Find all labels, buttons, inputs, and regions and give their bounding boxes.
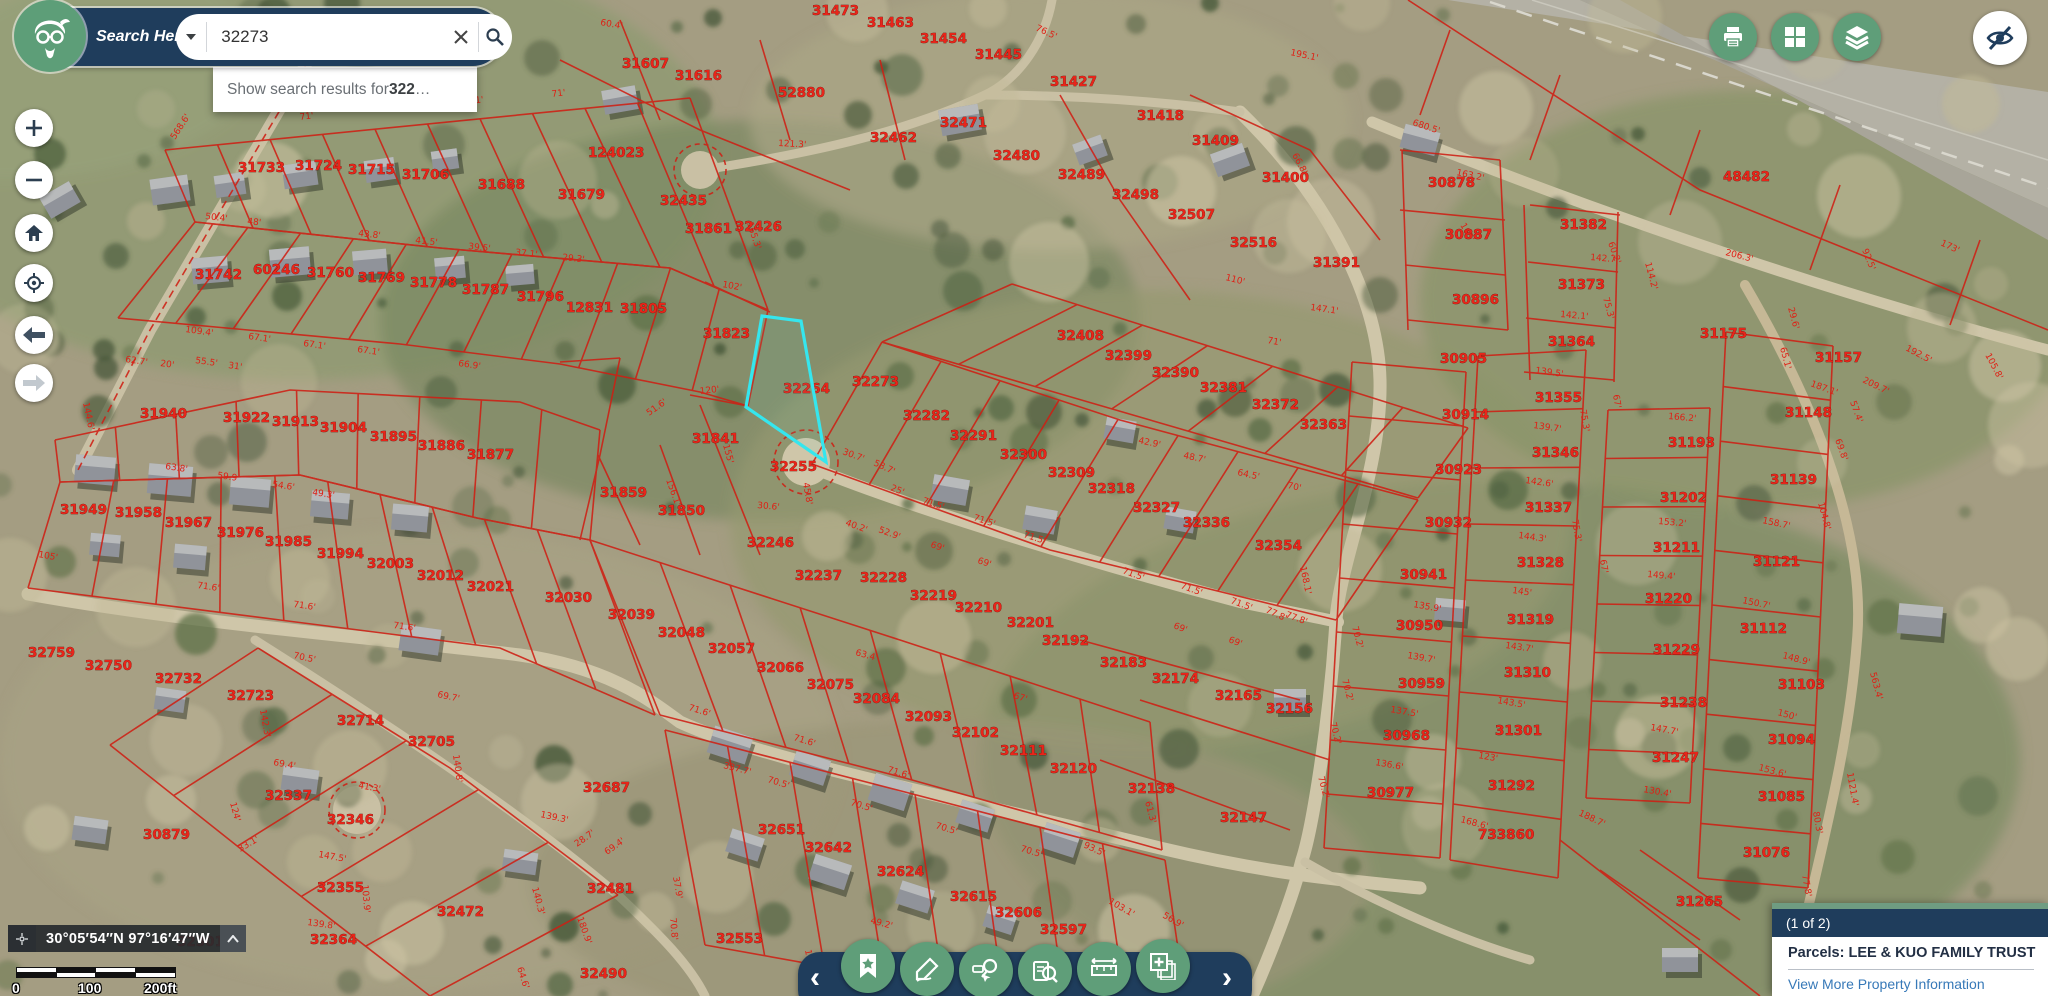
dimension-label: 20' (160, 359, 175, 371)
parcel-label: 32606 (995, 905, 1042, 921)
select-magnifier-icon (972, 958, 1000, 984)
parcel-label: 31310 (1504, 665, 1551, 681)
parcel-label: 32093 (905, 709, 952, 725)
parcel-label: 32490 (580, 966, 627, 982)
minus-icon (24, 170, 44, 190)
parcel-label: 733860 (1478, 827, 1534, 843)
property-search-button[interactable] (1018, 944, 1072, 996)
parcel-label: 32237 (795, 568, 842, 584)
parcel-label: 32111 (1000, 743, 1047, 759)
hide-interface-button[interactable] (1973, 11, 2027, 65)
bookmarks-button[interactable] (841, 939, 895, 993)
parcel-label: 31796 (517, 289, 564, 305)
parcel-label: 31760 (307, 265, 354, 281)
parcel-label: 31733 (238, 160, 285, 176)
parcel-label: 32021 (467, 579, 514, 595)
plus-icon (24, 118, 44, 138)
bookmark-icon (856, 953, 880, 979)
parcel-label: 32147 (1220, 810, 1267, 826)
result-title: Parcels: LEE & KUO FAMILY TRUST (1788, 945, 2034, 961)
parcel-label: 32399 (1105, 348, 1152, 364)
toolbar-prev-button[interactable]: ‹ (810, 965, 820, 991)
close-icon (453, 29, 469, 45)
parcel-label: 31724 (295, 158, 342, 174)
map-canvas[interactable]: 568.6'109.4'67.1'67.1'67.1'66.9'71'71'71… (0, 0, 2048, 996)
chevron-down-icon (185, 33, 197, 41)
parcel-label: 31148 (1785, 405, 1832, 421)
home-icon (24, 223, 44, 243)
layers-icon (1844, 24, 1870, 50)
parcel-label: 31094 (1768, 732, 1815, 748)
parcel-label: 30887 (1445, 227, 1492, 243)
parcel-label: 124023 (588, 145, 644, 161)
parcel-label: 32346 (327, 812, 374, 828)
parcel-label: 31454 (920, 31, 967, 47)
parcel-label: 32553 (716, 931, 763, 947)
parcel-label: 31940 (140, 406, 187, 422)
parcel-label: 32426 (735, 219, 782, 235)
parcel-label: 31103 (1778, 677, 1825, 693)
parcel-label: 31211 (1653, 540, 1700, 556)
results-body: Parcels: LEE & KUO FAMILY TRUST View Mor… (1772, 937, 2048, 996)
parcel-label: 31715 (348, 162, 395, 178)
dimension-label: 48' (247, 217, 262, 228)
parcel-label: 31175 (1700, 326, 1747, 342)
parcel-label: 30905 (1440, 351, 1487, 367)
parcel-label: 30879 (143, 827, 190, 843)
parcel-label: 32615 (950, 889, 997, 905)
parcel-label: 32273 (852, 374, 899, 390)
target-icon (23, 272, 45, 294)
parcel-label: 31427 (1050, 74, 1097, 90)
layers-button[interactable] (1833, 13, 1881, 61)
parcel-label: 31364 (1548, 334, 1595, 350)
parcel-label: 31373 (1558, 277, 1605, 293)
parcel-label: 32156 (1266, 701, 1313, 717)
zoom-in-button[interactable] (15, 109, 53, 147)
coordinate-readout: 30°05′54″N 97°16′47″W (8, 925, 246, 952)
parcel-label: 32246 (747, 535, 794, 551)
parcel-label: 32327 (1133, 500, 1180, 516)
chevron-up-icon (227, 935, 239, 943)
clear-search-button[interactable] (444, 14, 478, 60)
parcel-label: 32471 (940, 115, 987, 131)
parcel-label: 31391 (1313, 255, 1360, 271)
dimension-label: 70.8' (667, 917, 679, 940)
parcel-label: 32759 (28, 645, 75, 661)
parcel-label: 32507 (1168, 207, 1215, 223)
parcel-label: 31418 (1137, 108, 1184, 124)
parcel-label: 32165 (1215, 688, 1262, 704)
parcel-label: 31976 (217, 525, 264, 541)
coordinate-expand-button[interactable] (220, 925, 246, 952)
view-more-link[interactable]: View More Property Information (1788, 976, 2034, 992)
parcel-label: 32318 (1088, 481, 1135, 497)
parcel-label: 31085 (1758, 789, 1805, 805)
parcel-label: 32714 (337, 713, 384, 729)
parcel-label: 52880 (778, 85, 825, 101)
search-input[interactable] (207, 26, 444, 48)
parcel-label: 31247 (1652, 750, 1699, 766)
parcel-label: 31805 (620, 301, 667, 317)
scale-bar: 0 100 200ft (16, 967, 206, 996)
select-by-shape-button[interactable] (959, 944, 1013, 996)
divider (1788, 969, 2034, 970)
print-icon (1721, 25, 1745, 49)
parcel-label: 31895 (370, 429, 417, 445)
parcel-label: 31742 (195, 267, 242, 283)
parcel-label: 32336 (1183, 515, 1230, 531)
parcel-label: 31922 (223, 410, 270, 426)
parcel-label: 31949 (60, 502, 107, 518)
parcel-label: 31346 (1532, 445, 1579, 461)
dimension-label: 31' (228, 361, 243, 373)
parcel-label: 32300 (1000, 447, 1047, 463)
parcel-label: 32390 (1152, 365, 1199, 381)
parcel-label: 31994 (317, 546, 364, 562)
parcel-label: 32219 (910, 588, 957, 604)
parcel-label: 31904 (320, 420, 367, 436)
parcel-label: 31301 (1495, 723, 1542, 739)
parcel-label: 30968 (1383, 728, 1430, 744)
parcel-label: 32183 (1100, 655, 1147, 671)
app-logo[interactable] (14, 0, 86, 72)
parcel-label: 31445 (975, 47, 1022, 63)
parcel-label: 32354 (1255, 538, 1302, 554)
parcel-label: 31841 (692, 431, 739, 447)
parcel-label: 32516 (1230, 235, 1277, 251)
parcel-label: 32481 (587, 881, 634, 897)
basemap-grid-button[interactable] (1771, 13, 1819, 61)
parcel-label: 32750 (85, 658, 132, 674)
parcel-label: 32597 (1040, 922, 1087, 938)
my-location-button[interactable] (15, 264, 53, 302)
parcel-label: 32075 (807, 677, 854, 693)
parcel-label: 31787 (462, 282, 509, 298)
dimension-label: 30.6' (757, 501, 780, 513)
suggestion-ellipsis: … (415, 81, 431, 99)
parcel-label: 32201 (1007, 615, 1054, 631)
parcel-label: 32462 (870, 130, 917, 146)
eye-slash-icon (1985, 23, 2015, 53)
suggestion-prefix: Show search results for (227, 81, 389, 99)
parcel-label: 31861 (685, 221, 732, 237)
search-suggestion[interactable]: Show search results for 322… (213, 67, 477, 112)
parcel-label: 31121 (1753, 554, 1800, 570)
parcel-label: 32174 (1152, 671, 1199, 687)
parcel-label: 31229 (1653, 642, 1700, 658)
parcel-label: 32364 (310, 932, 357, 948)
grid-icon (1783, 25, 1807, 49)
parcel-label: 30923 (1435, 462, 1482, 478)
parcel-label: 32381 (1200, 380, 1247, 396)
parcel-label: 32210 (955, 600, 1002, 616)
parcel-label: 31886 (418, 438, 465, 454)
parcel-label: 30932 (1425, 515, 1472, 531)
parcel-label: 32039 (608, 607, 655, 623)
parcel-label: 31400 (1262, 170, 1309, 186)
parcel-label: 31220 (1645, 591, 1692, 607)
parcel-label: 31688 (478, 177, 525, 193)
parcel-label: 31193 (1668, 435, 1715, 451)
parcel-label: 31967 (165, 515, 212, 531)
scale-label-200: 200ft (144, 980, 177, 996)
map-application: 568.6'109.4'67.1'67.1'67.1'66.9'71'71'71… (0, 0, 2048, 996)
forward-button[interactable] (15, 364, 53, 402)
parcel-label: 32057 (708, 641, 755, 657)
parcel-label: 31706 (402, 167, 449, 183)
parcel-label: 32498 (1112, 187, 1159, 203)
dimension-label: 120' (699, 385, 720, 397)
parcel-label: 31265 (1676, 894, 1723, 910)
parcel-label: 32642 (805, 840, 852, 856)
parcel-label: 32003 (367, 556, 414, 572)
arrow-left-icon (23, 327, 45, 343)
coordinates-value: 30°05′54″N 97°16′47″W (36, 925, 220, 952)
back-button[interactable] (15, 316, 53, 354)
parcel-label: 31409 (1192, 133, 1239, 149)
parcel-label: 31850 (658, 503, 705, 519)
parcel-label: 32472 (437, 904, 484, 920)
add-data-button[interactable] (1136, 939, 1190, 993)
parcel-label: 31319 (1507, 612, 1554, 628)
parcel-label: 31139 (1770, 472, 1817, 488)
parcel-label: 32102 (952, 725, 999, 741)
parcel-label: 31679 (558, 187, 605, 203)
parcel-label: 32435 (660, 193, 707, 209)
parcel-label: 31157 (1815, 350, 1862, 366)
parcel-label: 31985 (265, 534, 312, 550)
parcel-label: 31823 (703, 326, 750, 342)
parcel-label: 32291 (950, 428, 997, 444)
document-search-icon (1032, 958, 1058, 984)
parcel-label: 31616 (675, 68, 722, 84)
parcel-label: 31202 (1660, 490, 1707, 506)
parcel-label: 31337 (1525, 500, 1572, 516)
search-input-wrap (176, 14, 512, 60)
parcel-label: 30896 (1452, 292, 1499, 308)
parcel-label: 12831 (566, 300, 613, 316)
dimension-label: 71' (299, 111, 314, 123)
parcel-label: 30977 (1367, 785, 1414, 801)
parcel-label: 32282 (903, 408, 950, 424)
parcel-label: 32012 (417, 568, 464, 584)
parcel-label: 31913 (272, 414, 319, 430)
parcel-label: 31076 (1743, 845, 1790, 861)
scale-bar-segments (16, 967, 176, 978)
parcel-label: 32192 (1042, 633, 1089, 649)
results-pager[interactable]: (1 of 2) (1772, 909, 2048, 937)
parcel-label: 32732 (155, 671, 202, 687)
parcel-label: 31463 (867, 15, 914, 31)
print-button[interactable] (1709, 13, 1757, 61)
crosshair-icon[interactable] (8, 925, 36, 952)
parcel-label: 32228 (860, 570, 907, 586)
parcel-label: 32489 (1058, 167, 1105, 183)
parcel-label: 32480 (993, 148, 1040, 164)
parcel-label: 31859 (600, 485, 647, 501)
parcel-label: 32651 (758, 822, 805, 838)
dimension-label: 71' (551, 88, 566, 100)
parcel-label: 32066 (757, 660, 804, 676)
parcel-label: 30941 (1400, 567, 1447, 583)
parcel-label: 32624 (877, 864, 924, 880)
measure-icon (1090, 957, 1118, 981)
toolbar-next-button[interactable]: › (1222, 965, 1232, 991)
parcel-label: 60246 (253, 262, 300, 278)
parcel-label: 32705 (408, 734, 455, 750)
parcel-label: 30959 (1398, 676, 1445, 692)
suggestion-term: 322 (389, 81, 415, 99)
pencil-icon (914, 956, 940, 982)
scale-label-0: 0 (12, 980, 20, 996)
draw-button[interactable] (900, 942, 954, 996)
search-submit-button[interactable] (479, 14, 513, 60)
parcel-label: 32309 (1048, 465, 1095, 481)
parcel-label: 32355 (317, 880, 364, 896)
dimension-label: 121.3' (778, 139, 807, 150)
parcel-label: 31328 (1517, 555, 1564, 571)
parcel-label: 31473 (812, 3, 859, 19)
parcel-label: 32687 (583, 780, 630, 796)
parcel-label: 48482 (1723, 169, 1770, 185)
mascot-icon (14, 0, 86, 72)
add-layers-icon (1149, 952, 1177, 980)
parcel-label: 32723 (227, 688, 274, 704)
search-type-dropdown[interactable] (176, 30, 206, 44)
parcel-label: 31382 (1560, 217, 1607, 233)
parcel-label: 32408 (1057, 328, 1104, 344)
home-button[interactable] (15, 214, 53, 252)
search-bar: Search Here: (18, 8, 502, 66)
parcel-label: 31112 (1740, 621, 1787, 637)
parcel-label: 32138 (1128, 781, 1175, 797)
parcel-label: 32048 (658, 625, 705, 641)
parcel-label: 32363 (1300, 417, 1347, 433)
scale-label-100: 100 (78, 980, 101, 996)
parcel-label: 30950 (1396, 618, 1443, 634)
parcel-label: 32120 (1050, 761, 1097, 777)
parcel-label: 32030 (545, 590, 592, 606)
parcel-label: 32084 (853, 691, 900, 707)
parcel-label: 32372 (1252, 397, 1299, 413)
parcel-label: 30914 (1442, 407, 1489, 423)
parcel-label: 31877 (467, 447, 514, 463)
parcel-label: 32337 (265, 788, 312, 804)
parcel-label: 31292 (1488, 778, 1535, 794)
search-icon (485, 27, 505, 47)
measure-button[interactable] (1077, 942, 1131, 996)
parcel-label: 30878 (1428, 175, 1475, 191)
parcel-label: 32255 (770, 459, 817, 475)
parcel-label: 31769 (358, 270, 405, 286)
zoom-out-button[interactable] (15, 161, 53, 199)
parcel-label: 31958 (115, 505, 162, 521)
parcel-label: 31238 (1660, 695, 1707, 711)
results-panel: (1 of 2) Parcels: LEE & KUO FAMILY TRUST… (1772, 903, 2048, 996)
parcel-label: 31778 (410, 275, 457, 291)
arrow-right-icon (23, 375, 45, 391)
parcel-label: 31607 (622, 56, 669, 72)
parcel-label: 31355 (1535, 390, 1582, 406)
